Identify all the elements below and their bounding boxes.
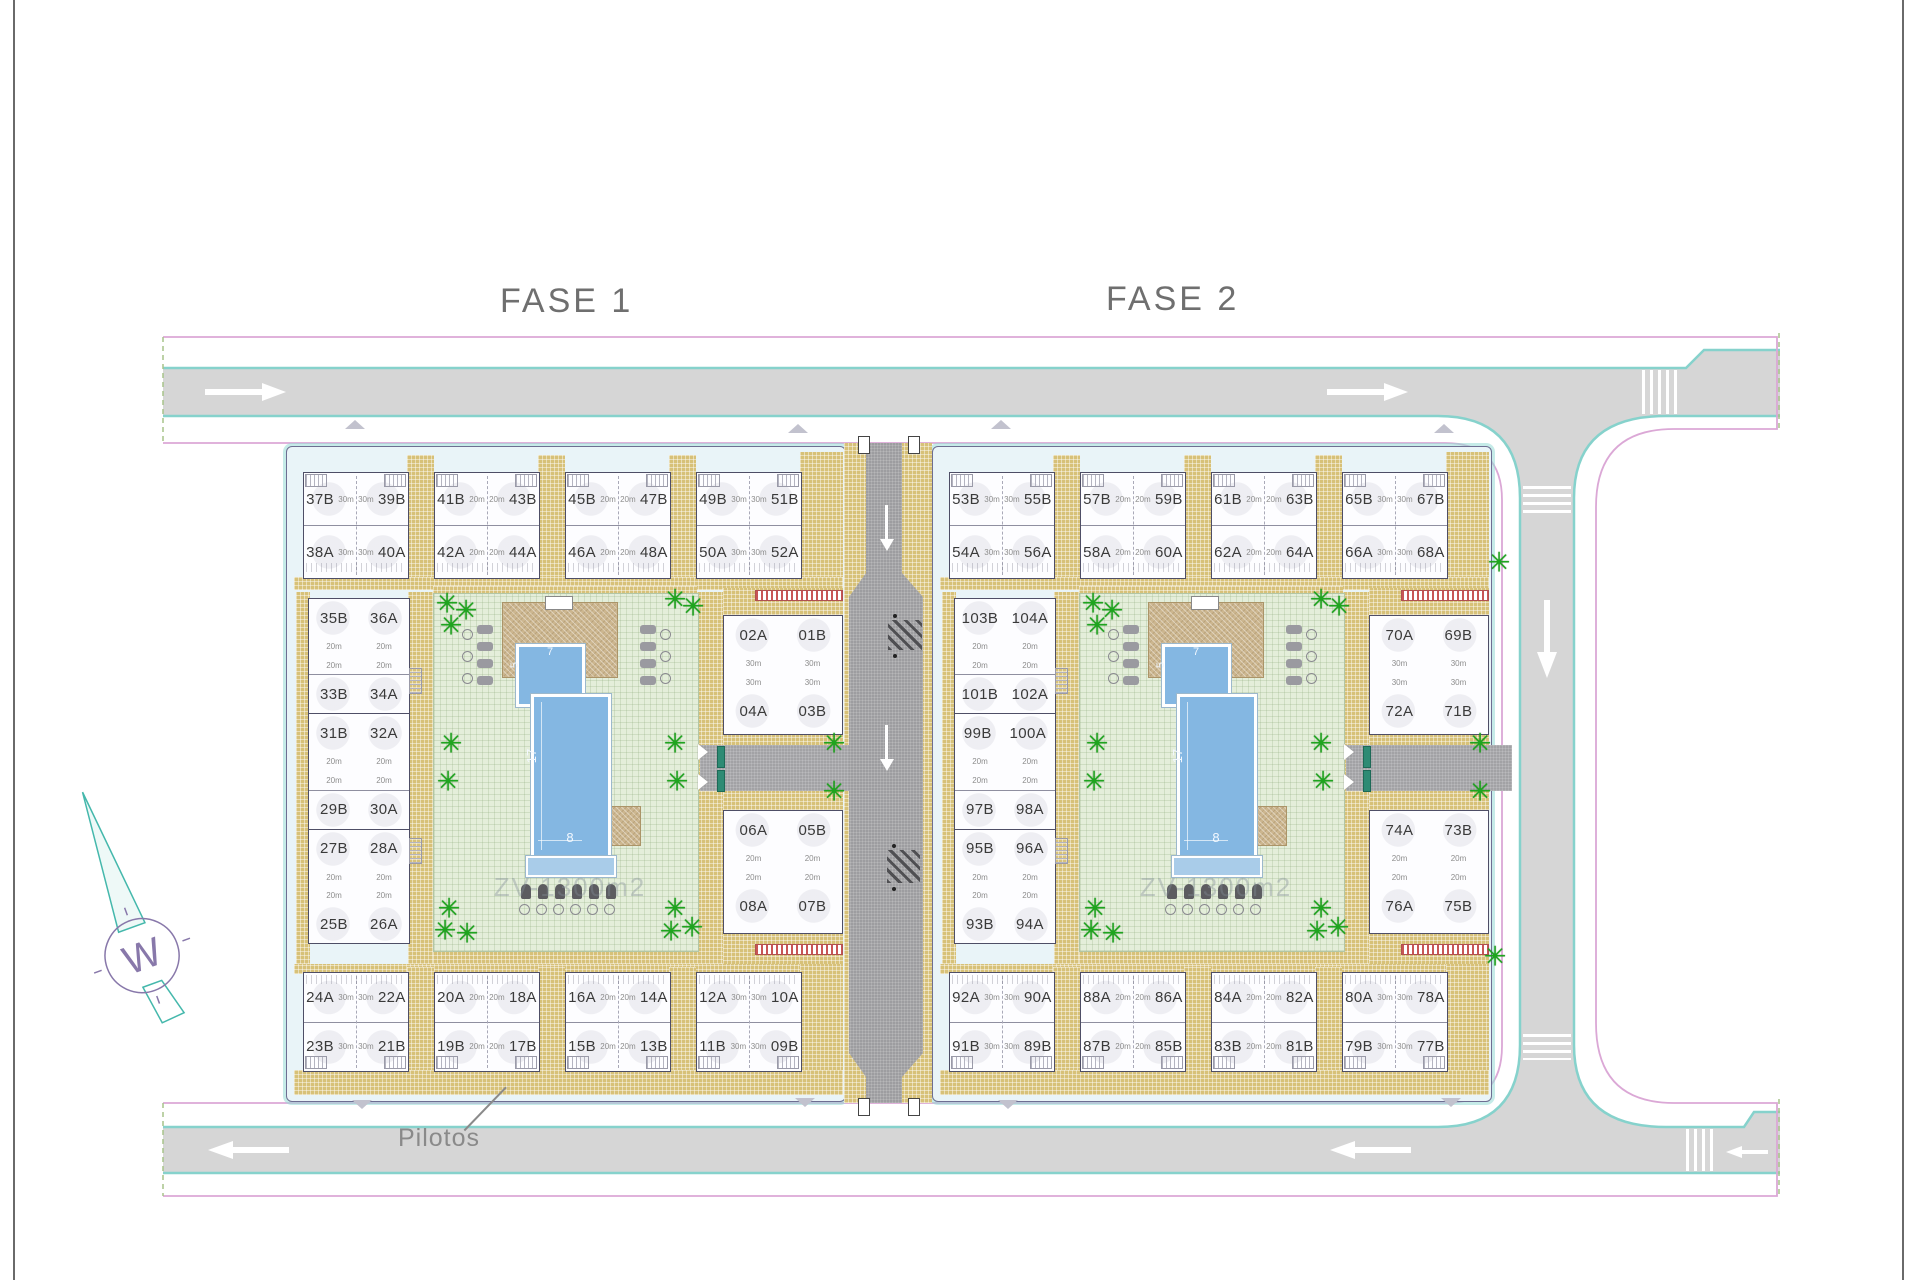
paving <box>407 455 434 588</box>
building-midcolumn: 74A73B20m20m20m20m76A75B <box>1369 810 1489 934</box>
unit-label: 78A <box>1417 989 1445 1006</box>
unit-label: 51B <box>771 491 799 508</box>
pool-length-label: 17 <box>524 744 540 768</box>
party-wall-line <box>1002 476 1003 575</box>
kids-pool-width-label: 7 <box>1186 646 1206 660</box>
palm-tree-icon: ✳ <box>1086 731 1109 758</box>
palm-tree-icon: ✳ <box>1328 594 1351 621</box>
lounger-icon <box>477 625 493 634</box>
stairs-icon <box>515 1056 537 1069</box>
right-road <box>1520 416 1574 1127</box>
pergola-strip <box>1401 944 1489 955</box>
unit-area-label: 20m <box>620 548 636 557</box>
palm-tree-icon: ✳ <box>823 731 846 758</box>
unit-label: 77B <box>1417 1038 1445 1055</box>
stairs-icon <box>567 1056 589 1069</box>
palm-tree-icon: ✳ <box>1484 944 1507 971</box>
unit-area-label: 20m <box>1266 548 1282 557</box>
unit-row: 103B104A <box>955 599 1055 637</box>
unit-label: 82A <box>1286 989 1314 1006</box>
unit-label: 40A <box>378 544 406 561</box>
pergola-strip <box>755 944 843 955</box>
unit-label: 79B <box>1345 1038 1373 1055</box>
party-wall-line <box>749 476 750 575</box>
unit-area-label: 30m <box>358 1042 374 1051</box>
unit-area-label: 20m <box>1022 642 1038 651</box>
unit-label: 35B <box>320 610 348 627</box>
stairs-icon <box>646 474 668 487</box>
paving <box>669 455 696 588</box>
unit-area-label: 30m <box>731 1042 747 1051</box>
unit-area-label: 20m <box>600 495 616 504</box>
stairs-icon <box>515 474 537 487</box>
unit-area-row: 20m20m <box>955 752 1055 771</box>
railing <box>1214 975 1312 984</box>
unit-label: 42A <box>437 544 465 561</box>
unit-label: 52A <box>771 544 799 561</box>
building-sidecolumn: 35B36A20m20m20m20m33B34A31B32A20m20m20m2… <box>308 598 410 944</box>
unit-area-label: 20m <box>326 776 342 785</box>
stairs-icon <box>1344 474 1366 487</box>
unit-area-label: 20m <box>1392 854 1408 863</box>
unit-area-label: 20m <box>376 642 392 651</box>
stairs-icon <box>1292 474 1314 487</box>
unit-area-label: 20m <box>489 993 505 1002</box>
stairs-icon <box>1055 668 1068 694</box>
gate-post <box>858 1098 870 1116</box>
unit-row: 31B32A <box>309 714 409 752</box>
unit-area-label: 20m <box>376 891 392 900</box>
unit-area-label: 20m <box>1451 854 1467 863</box>
unit-label: 57B <box>1083 491 1111 508</box>
unit-area-label: 20m <box>620 495 636 504</box>
railing <box>306 563 404 572</box>
unit-label: 88A <box>1083 989 1111 1006</box>
unit-label: 87B <box>1083 1038 1111 1055</box>
unit-area-label: 20m <box>1392 873 1408 882</box>
unit-area-label: 20m <box>1115 993 1131 1002</box>
unit-area-label: 20m <box>489 548 505 557</box>
unit-label: 101B <box>962 686 999 703</box>
stairs-icon <box>698 474 720 487</box>
unit-area-label: 30m <box>338 495 354 504</box>
lounger-icon <box>477 659 493 668</box>
unit-area-label: 20m <box>972 873 988 882</box>
stairs-icon <box>1213 474 1235 487</box>
unit-label: 93B <box>966 916 994 933</box>
unit-area-label: 20m <box>1266 495 1282 504</box>
unit-area-row: 20m20m <box>955 868 1055 887</box>
chair-icon <box>553 904 564 915</box>
railing <box>437 975 535 984</box>
unit-row: 101B102A <box>955 674 1055 714</box>
unit-row: 74A73B <box>1370 811 1488 849</box>
unit-label: 31B <box>320 725 348 742</box>
palm-tree-icon: ✳ <box>1306 919 1329 946</box>
unit-label: 104A <box>1012 610 1049 627</box>
unit-area-row: 20m20m <box>724 849 842 868</box>
unit-area-label: 30m <box>1451 678 1467 687</box>
unit-label: 27B <box>320 840 348 857</box>
unit-row: 29B30A <box>309 790 409 830</box>
unit-label: 67B <box>1417 491 1445 508</box>
unit-label: 55B <box>1024 491 1052 508</box>
unit-label: 01B <box>799 627 827 644</box>
unit-area-label: 30m <box>1377 993 1393 1002</box>
unit-label: 97B <box>966 801 994 818</box>
unit-area-label: 20m <box>1115 548 1131 557</box>
unit-label: 22A <box>378 989 406 1006</box>
gate-post <box>908 1098 920 1116</box>
unit-area-row: 20m20m <box>955 771 1055 790</box>
unit-row: 35B36A <box>309 599 409 637</box>
unit-area-label: 20m <box>620 993 636 1002</box>
parasol-icon <box>1108 651 1119 662</box>
unit-label: 17B <box>509 1038 537 1055</box>
unit-area-row: 20m20m <box>1370 868 1488 887</box>
stairs-icon <box>951 1056 973 1069</box>
gate-marker <box>698 774 708 790</box>
unit-label: 41B <box>437 491 465 508</box>
unit-label: 70A <box>1386 627 1414 644</box>
pool-dim-line <box>538 840 582 841</box>
unit-area-row: 20m20m <box>309 656 409 675</box>
unit-area-label: 20m <box>746 873 762 882</box>
unit-area-label: 20m <box>1451 873 1467 882</box>
unit-label: 76A <box>1386 898 1414 915</box>
unit-area-row: 30m30m <box>1370 673 1488 692</box>
unit-label: 49B <box>699 491 727 508</box>
palm-tree-icon: ✳ <box>1488 550 1511 577</box>
unit-label: 94A <box>1016 916 1044 933</box>
unit-label: 59B <box>1155 491 1183 508</box>
palm-tree-icon: ✳ <box>456 921 479 948</box>
unit-area-row: 20m20m <box>309 752 409 771</box>
paving <box>800 452 843 588</box>
stairs-icon <box>305 1056 327 1069</box>
unit-area-label: 30m <box>805 678 821 687</box>
bollard-icon <box>893 654 897 658</box>
gate-post <box>908 436 920 454</box>
unit-area-label: 20m <box>1266 1042 1282 1051</box>
pergola-strip <box>755 590 843 601</box>
site-plan-sheet: FASE 1 FASE 2 Pilotos W 17857ZV-1300m237… <box>0 0 1920 1280</box>
unit-label: 28A <box>370 840 398 857</box>
unit-area-label: 20m <box>972 757 988 766</box>
palm-tree-icon: ✳ <box>664 731 687 758</box>
unit-label: 07B <box>799 898 827 915</box>
lounger-icon <box>477 676 493 685</box>
unit-label: 12A <box>699 989 727 1006</box>
unit-area-label: 30m <box>358 993 374 1002</box>
palm-tree-icon: ✳ <box>660 919 683 946</box>
chair-icon <box>1216 904 1227 915</box>
roof-gable-icon <box>1441 1098 1461 1107</box>
palm-tree-icon: ✳ <box>1469 731 1492 758</box>
stairs-icon <box>1344 1056 1366 1069</box>
unit-area-label: 20m <box>469 993 485 1002</box>
unit-area-label: 20m <box>600 548 616 557</box>
unit-label: 96A <box>1016 840 1044 857</box>
railing <box>1345 563 1443 572</box>
chair-icon <box>1182 904 1193 915</box>
stairs-icon <box>951 474 973 487</box>
unit-area-label: 20m <box>1135 548 1151 557</box>
unit-area-label: 20m <box>972 891 988 900</box>
chair-icon <box>1233 904 1244 915</box>
unit-area-label: 20m <box>1135 495 1151 504</box>
unit-label: 24A <box>306 989 334 1006</box>
stairs-icon <box>1161 474 1183 487</box>
unit-label: 99B <box>964 725 992 742</box>
parasol-icon <box>660 651 671 662</box>
unit-label: 81B <box>1286 1038 1314 1055</box>
unit-row: 04A03B <box>724 692 842 730</box>
pool-deck <box>607 806 641 846</box>
stairs-icon <box>1082 1056 1104 1069</box>
parasol-icon <box>1306 651 1317 662</box>
railing <box>1214 563 1312 572</box>
unit-label: 10A <box>771 989 799 1006</box>
unit-label: 15B <box>568 1038 596 1055</box>
stairs-icon <box>1423 474 1445 487</box>
palm-tree-icon: ✳ <box>666 769 689 796</box>
parasol-icon <box>462 629 473 640</box>
lounger-icon <box>1123 642 1139 651</box>
top-road <box>163 350 1780 416</box>
unit-area-label: 30m <box>338 548 354 557</box>
party-wall-line <box>1264 976 1265 1068</box>
building-sidecolumn: 103B104A20m20m20m20m101B102A99B100A20m20… <box>954 598 1056 944</box>
unit-label: 71B <box>1445 703 1473 720</box>
unit-area-label: 20m <box>326 661 342 670</box>
unit-area-label: 30m <box>1397 548 1413 557</box>
unit-label: 91B <box>952 1038 980 1055</box>
stairs-icon <box>1055 838 1068 864</box>
unit-area-label: 20m <box>972 661 988 670</box>
unit-label: 64A <box>1286 544 1314 561</box>
unit-label: 11B <box>699 1038 726 1055</box>
unit-area-label: 20m <box>469 495 485 504</box>
unit-label: 102A <box>1012 686 1049 703</box>
party-wall-line <box>1395 976 1396 1068</box>
unit-area-label: 30m <box>1397 495 1413 504</box>
unit-label: 48A <box>640 544 668 561</box>
unit-area-label: 20m <box>600 1042 616 1051</box>
unit-area-label: 30m <box>358 548 374 557</box>
unit-area-label: 30m <box>1392 678 1408 687</box>
unit-label: 26A <box>370 916 398 933</box>
unit-label: 50A <box>699 544 727 561</box>
unit-label: 25B <box>320 916 348 933</box>
unit-area-label: 20m <box>1022 661 1038 670</box>
unit-label: 72A <box>1386 703 1414 720</box>
lounger-icon <box>1286 659 1302 668</box>
paving <box>1184 455 1211 588</box>
chair-icon <box>519 904 530 915</box>
unit-label: 36A <box>370 610 398 627</box>
railing <box>568 563 666 572</box>
unit-area-label: 30m <box>1004 548 1020 557</box>
roof-gable-icon <box>345 420 365 429</box>
unit-label: 95B <box>966 840 994 857</box>
pool-dim-line <box>541 702 542 850</box>
palm-tree-icon: ✳ <box>1327 915 1350 942</box>
unit-label: 65B <box>1345 491 1373 508</box>
stairs-icon <box>646 1056 668 1069</box>
chair-icon <box>570 904 581 915</box>
unit-area-label: 30m <box>1377 495 1393 504</box>
unit-label: 23B <box>306 1038 334 1055</box>
unit-area-label: 30m <box>1397 1042 1413 1051</box>
lounger-icon <box>1286 676 1302 685</box>
unit-label: 98A <box>1016 801 1044 818</box>
stairs-icon <box>384 1056 406 1069</box>
unit-area-label: 20m <box>326 642 342 651</box>
railing <box>952 563 1050 572</box>
stairs-icon <box>698 1056 720 1069</box>
unit-area-label: 20m <box>376 661 392 670</box>
stairs-icon <box>305 474 327 487</box>
bollard-icon <box>892 887 896 891</box>
unit-area-label: 20m <box>600 993 616 1002</box>
unit-label: 32A <box>370 725 398 742</box>
gate-post <box>858 436 870 454</box>
palm-tree-icon: ✳ <box>682 594 705 621</box>
unit-area-label: 20m <box>1022 873 1038 882</box>
unit-label: 80A <box>1345 989 1373 1006</box>
unit-area-label: 20m <box>1022 776 1038 785</box>
unit-row: 70A69B <box>1370 616 1488 654</box>
lounger-icon <box>477 642 493 651</box>
chair-icon <box>587 904 598 915</box>
unit-label: 02A <box>740 627 768 644</box>
stairs-icon <box>409 838 422 864</box>
building-midcolumn: 70A69B30m30m30m30m72A71B <box>1369 615 1489 735</box>
unit-area-label: 30m <box>1392 659 1408 668</box>
kids-pool-height-label: 5 <box>1155 655 1169 675</box>
stairs-icon <box>1030 474 1052 487</box>
unit-area-label: 30m <box>746 659 762 668</box>
stairs-icon <box>567 474 589 487</box>
unit-label: 38A <box>306 544 334 561</box>
railing <box>699 975 797 984</box>
palm-tree-icon: ✳ <box>1083 769 1106 796</box>
stairs-icon <box>1292 1056 1314 1069</box>
unit-area-row: 20m20m <box>955 886 1055 905</box>
lounger-icon <box>640 659 656 668</box>
paving <box>940 1070 1489 1095</box>
paving <box>1079 950 1343 964</box>
unit-area-label: 20m <box>376 776 392 785</box>
unit-area-label: 30m <box>731 548 747 557</box>
unit-area-label: 20m <box>1115 495 1131 504</box>
chair-icon <box>536 904 547 915</box>
roof-gable-icon <box>991 420 1011 429</box>
party-wall-line <box>618 476 619 575</box>
lounger-icon <box>1123 625 1139 634</box>
unit-label: 20A <box>437 989 465 1006</box>
crossing-hatch <box>887 850 920 883</box>
unit-label: 18A <box>509 989 537 1006</box>
unit-label: 09B <box>771 1038 799 1055</box>
kids-pool-width-label: 7 <box>540 646 560 660</box>
unit-label: 61B <box>1214 491 1242 508</box>
curb-line <box>163 350 1780 368</box>
unit-area-label: 30m <box>1397 993 1413 1002</box>
unit-area-label: 30m <box>805 659 821 668</box>
unit-area-label: 30m <box>731 495 747 504</box>
unit-area-row: 30m30m <box>724 654 842 673</box>
stairs-icon <box>777 1056 799 1069</box>
palm-tree-icon: ✳ <box>434 918 457 945</box>
party-wall-line <box>618 976 619 1068</box>
hedge-planter <box>717 746 725 768</box>
curb-line <box>1574 416 1780 1127</box>
unit-label: 13B <box>640 1038 668 1055</box>
unit-area-label: 20m <box>1246 1042 1262 1051</box>
unit-label: 37B <box>306 491 334 508</box>
paving <box>1315 455 1342 588</box>
unit-area-label: 30m <box>1004 1042 1020 1051</box>
railing <box>1345 975 1443 984</box>
unit-area-label: 20m <box>469 1042 485 1051</box>
unit-label: 90A <box>1024 989 1052 1006</box>
unit-area-row: 20m20m <box>309 771 409 790</box>
unit-row: 95B96A <box>955 830 1055 868</box>
lounger-icon <box>640 642 656 651</box>
deck-table <box>545 596 573 610</box>
pool-dim-line <box>1184 840 1228 841</box>
stairs-icon <box>436 474 458 487</box>
unit-area-label: 30m <box>358 495 374 504</box>
unit-label: 58A <box>1083 544 1111 561</box>
parasol-icon <box>660 629 671 640</box>
unit-label: 34A <box>370 686 398 703</box>
unit-row: 99B100A <box>955 714 1055 752</box>
parasol-icon <box>462 651 473 662</box>
unit-area-label: 30m <box>1004 993 1020 1002</box>
kids-pool-height-label: 5 <box>509 655 523 675</box>
unit-label: 100A <box>1009 725 1046 742</box>
unit-label: 83B <box>1214 1038 1242 1055</box>
palm-tree-icon: ✳ <box>440 613 463 640</box>
party-wall-line <box>487 476 488 575</box>
parasol-icon <box>462 673 473 684</box>
lounger-icon <box>1286 642 1302 651</box>
pool-width-label: 8 <box>1204 830 1228 846</box>
party-wall-line <box>487 976 488 1068</box>
unit-row: 08A07B <box>724 887 842 925</box>
unit-area-label: 20m <box>376 873 392 882</box>
unit-area-label: 30m <box>751 548 767 557</box>
unit-area-label: 30m <box>984 495 1000 504</box>
unit-label: 45B <box>568 491 596 508</box>
palm-tree-icon: ✳ <box>1086 613 1109 640</box>
palm-tree-icon: ✳ <box>823 779 846 806</box>
unit-label: 74A <box>1386 822 1414 839</box>
unit-area-label: 30m <box>338 1042 354 1051</box>
unit-area-label: 30m <box>1004 495 1020 504</box>
unit-label: 05B <box>799 822 827 839</box>
unit-area-row: 30m30m <box>724 673 842 692</box>
gate-marker <box>1344 774 1354 790</box>
unit-label: 85B <box>1155 1038 1183 1055</box>
chair-icon <box>1199 904 1210 915</box>
fase1-title: FASE 1 <box>500 282 633 321</box>
unit-area-label: 20m <box>326 891 342 900</box>
unit-row: 93B94A <box>955 905 1055 943</box>
